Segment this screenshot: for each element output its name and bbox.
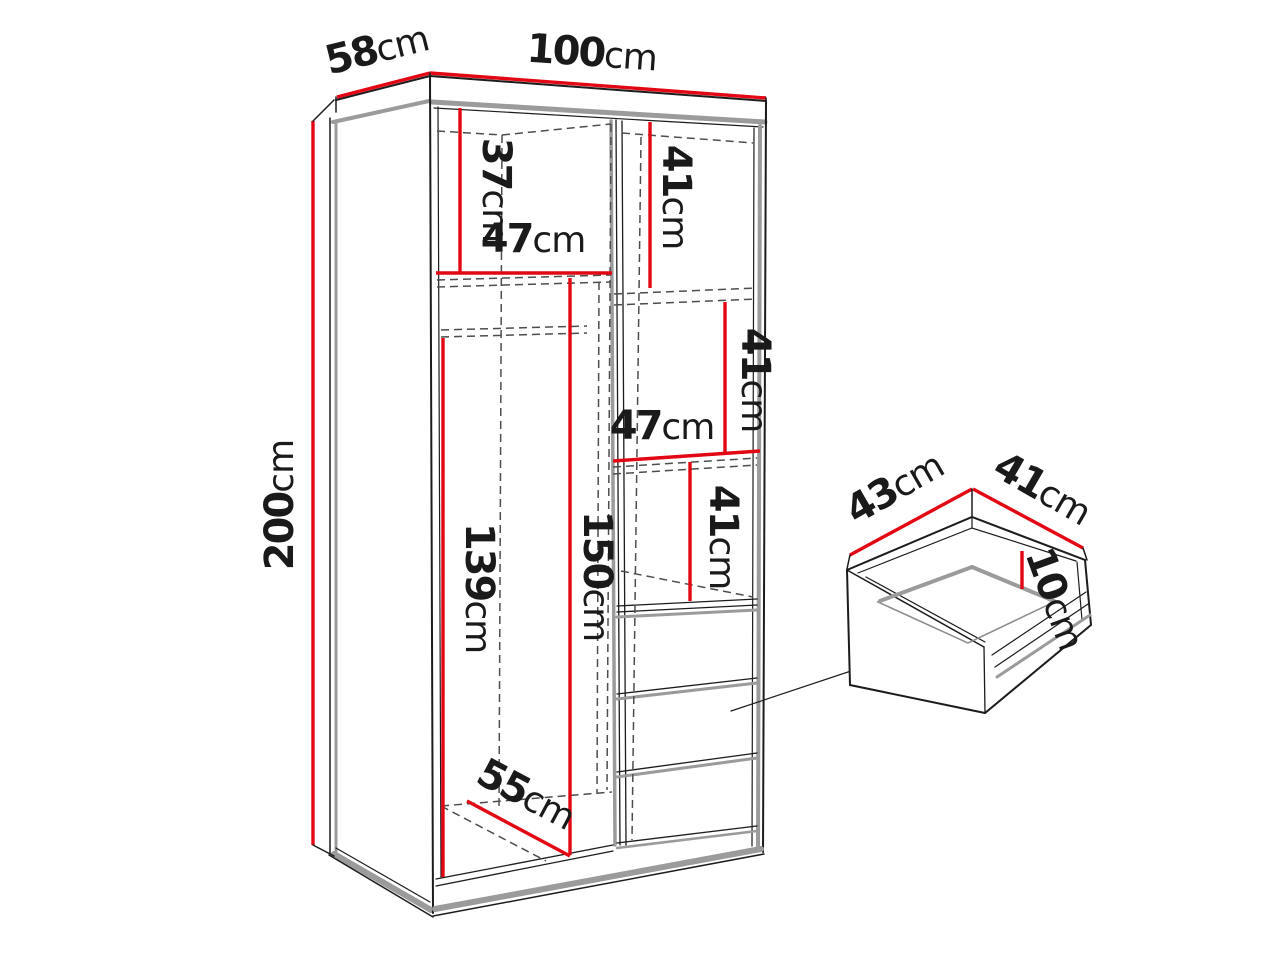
left-top-back-dashed-b (502, 124, 611, 135)
hanging-rail-dashed-b (441, 333, 587, 337)
dim-label-41cm-mid: 41cm (732, 328, 778, 433)
tick-200-top (313, 100, 334, 121)
dim-label-47cm-right: 47cm (610, 403, 715, 449)
top-band-left-shade (333, 101, 429, 122)
dim-line-100cm (430, 73, 766, 98)
front-left-inner (438, 107, 441, 877)
divider-shade (611, 121, 615, 845)
dim-label-58cm: 58cm (321, 14, 434, 84)
dim-label-100cm: 100cm (525, 26, 658, 81)
tick-41-right (1083, 548, 1087, 560)
right-shelf1-dashed-b (614, 299, 757, 305)
front-right-inner (752, 128, 754, 846)
dimension-labels: 58cm 100cm 200cm 37cm 47cm 41cm 41cm 47c… (257, 14, 1099, 839)
dim-label-43cm: 43cm (838, 442, 952, 534)
tick-43-left (847, 555, 850, 569)
right-shelf1-dashed-a (614, 288, 757, 294)
drawer-stack (617, 599, 757, 777)
divider-edge-a (616, 120, 620, 845)
drawer-divider-2 (617, 753, 757, 772)
front-left-edge (430, 76, 433, 913)
wardrobe-dimension-diagram: 58cm 100cm 200cm 37cm 47cm 41cm 41cm 47c… (0, 0, 1280, 960)
left-bottom-shade (334, 854, 431, 910)
right-shelf2-dashed-b (613, 465, 757, 474)
dim-label-150cm: 150cm (574, 511, 620, 641)
front-right-shade (758, 126, 760, 848)
drawer-stack-top-a (617, 599, 757, 606)
left-top-back-dashed-a (437, 131, 502, 135)
diagram-canvas: 58cm 100cm 200cm 37cm 47cm 41cm 41cm 47c… (0, 0, 1280, 960)
tick-200-bottom (313, 845, 334, 856)
bottom-shade (435, 849, 761, 909)
dim-label-200cm: 200cm (257, 440, 303, 570)
right-back-corner-dashed (632, 137, 641, 840)
hanging-rail-dashed-a (441, 326, 587, 330)
plinth-top-right-shade (617, 831, 757, 848)
top-band-front-shade (432, 102, 765, 122)
left-bottom-edge (329, 855, 433, 917)
top-front-edge (430, 76, 766, 101)
left-shelf-back-dashed-b (437, 282, 611, 287)
dim-label-41cm-lower: 41cm (700, 485, 746, 590)
left-shelf-back-dashed-a (437, 275, 611, 280)
drawer-divider-2-shade (617, 758, 757, 777)
dim-label-41cm-drawer: 41cm (986, 443, 1100, 535)
left-bottom-inner (336, 848, 430, 902)
dim-label-47cm-left: 47cm (481, 216, 586, 262)
dim-label-41cm-top: 41cm (653, 145, 699, 250)
bottom-edge (433, 854, 764, 916)
dim-label-55cm: 55cm (469, 750, 583, 840)
front-right-edge (763, 101, 766, 852)
dim-line-47cm-right (613, 451, 760, 461)
dim-label-139cm: 139cm (456, 523, 502, 653)
divider-edge-b (622, 121, 626, 845)
